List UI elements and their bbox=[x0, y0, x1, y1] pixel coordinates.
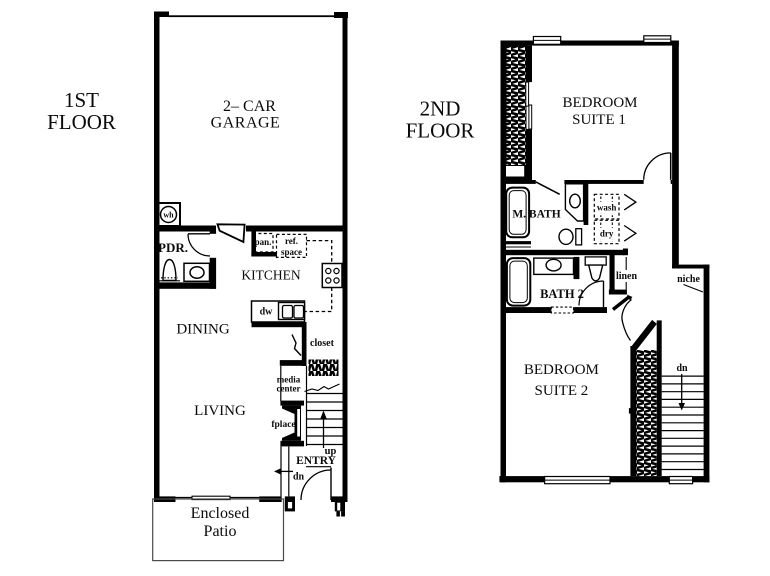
svg-text:2– CAR: 2– CAR bbox=[223, 98, 276, 115]
svg-text:LIVING: LIVING bbox=[194, 403, 246, 419]
svg-text:GARAGE: GARAGE bbox=[211, 115, 281, 132]
svg-text:FLOOR: FLOOR bbox=[47, 110, 116, 134]
svg-text:linen: linen bbox=[616, 271, 638, 282]
svg-text:PDR.: PDR. bbox=[158, 240, 188, 255]
svg-text:wash: wash bbox=[597, 203, 617, 213]
svg-text:dry: dry bbox=[600, 229, 614, 239]
svg-text:dn: dn bbox=[293, 472, 305, 483]
svg-text:center: center bbox=[277, 384, 301, 394]
svg-text:DINING: DINING bbox=[176, 322, 229, 338]
svg-text:KITCHEN: KITCHEN bbox=[241, 268, 300, 283]
svg-text:closet: closet bbox=[310, 338, 335, 349]
svg-text:pan.: pan. bbox=[255, 237, 272, 247]
svg-text:BEDROOM: BEDROOM bbox=[562, 95, 637, 111]
svg-text:niche: niche bbox=[677, 274, 700, 285]
svg-text:dw: dw bbox=[260, 307, 274, 318]
svg-text:SUITE 1: SUITE 1 bbox=[572, 112, 626, 128]
svg-text:ref.: ref. bbox=[285, 236, 298, 246]
svg-text:Patio: Patio bbox=[204, 523, 237, 540]
svg-text:M. BATH: M. BATH bbox=[512, 209, 560, 221]
svg-text:2ND: 2ND bbox=[420, 97, 461, 121]
svg-text:wh: wh bbox=[163, 211, 174, 220]
svg-text:FLOOR: FLOOR bbox=[406, 119, 475, 143]
svg-text:SUITE 2: SUITE 2 bbox=[535, 383, 589, 399]
svg-text:dn: dn bbox=[676, 363, 688, 374]
svg-text:1ST: 1ST bbox=[64, 88, 99, 112]
svg-text:space: space bbox=[281, 247, 302, 257]
svg-text:BATH 2: BATH 2 bbox=[540, 287, 584, 301]
svg-text:fplace: fplace bbox=[271, 420, 295, 430]
svg-text:ENTRY: ENTRY bbox=[296, 455, 337, 467]
svg-text:BEDROOM: BEDROOM bbox=[524, 362, 599, 378]
svg-text:Enclosed: Enclosed bbox=[191, 505, 250, 522]
